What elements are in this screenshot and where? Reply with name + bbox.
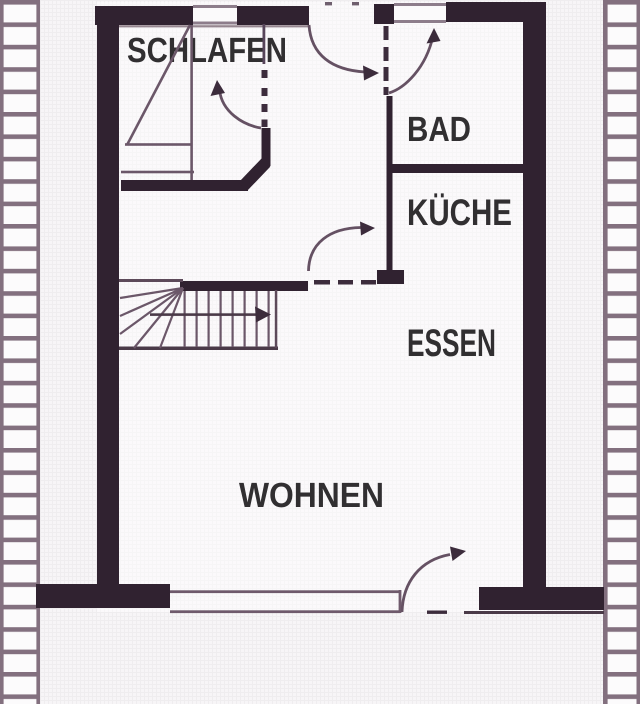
svg-text:WOHNEN: WOHNEN	[239, 476, 384, 515]
svg-text:ESSEN: ESSEN	[407, 322, 496, 365]
svg-text:KÜCHE: KÜCHE	[407, 192, 512, 233]
svg-text:BAD: BAD	[407, 110, 471, 149]
